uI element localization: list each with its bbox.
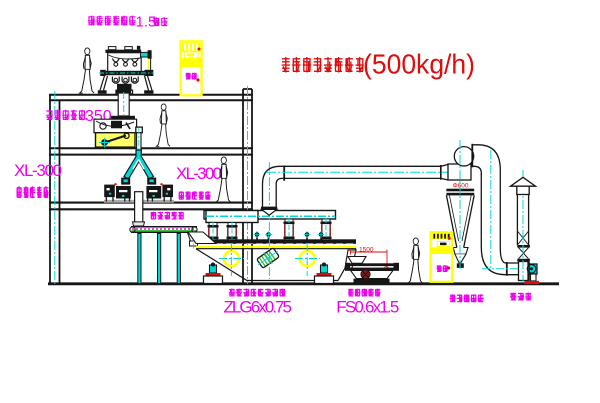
- svg-text:ZLG6x0.75: ZLG6x0.75: [224, 298, 293, 317]
- svg-text:(500kg/h): (500kg/h): [363, 49, 475, 80]
- svg-text:XL-300: XL-300: [14, 161, 62, 180]
- svg-text:1500: 1500: [359, 247, 374, 254]
- svg-text:XL-300: XL-300: [176, 164, 222, 183]
- svg-text:Φ600: Φ600: [453, 183, 469, 190]
- svg-text:FS0.6x1.5: FS0.6x1.5: [336, 298, 399, 317]
